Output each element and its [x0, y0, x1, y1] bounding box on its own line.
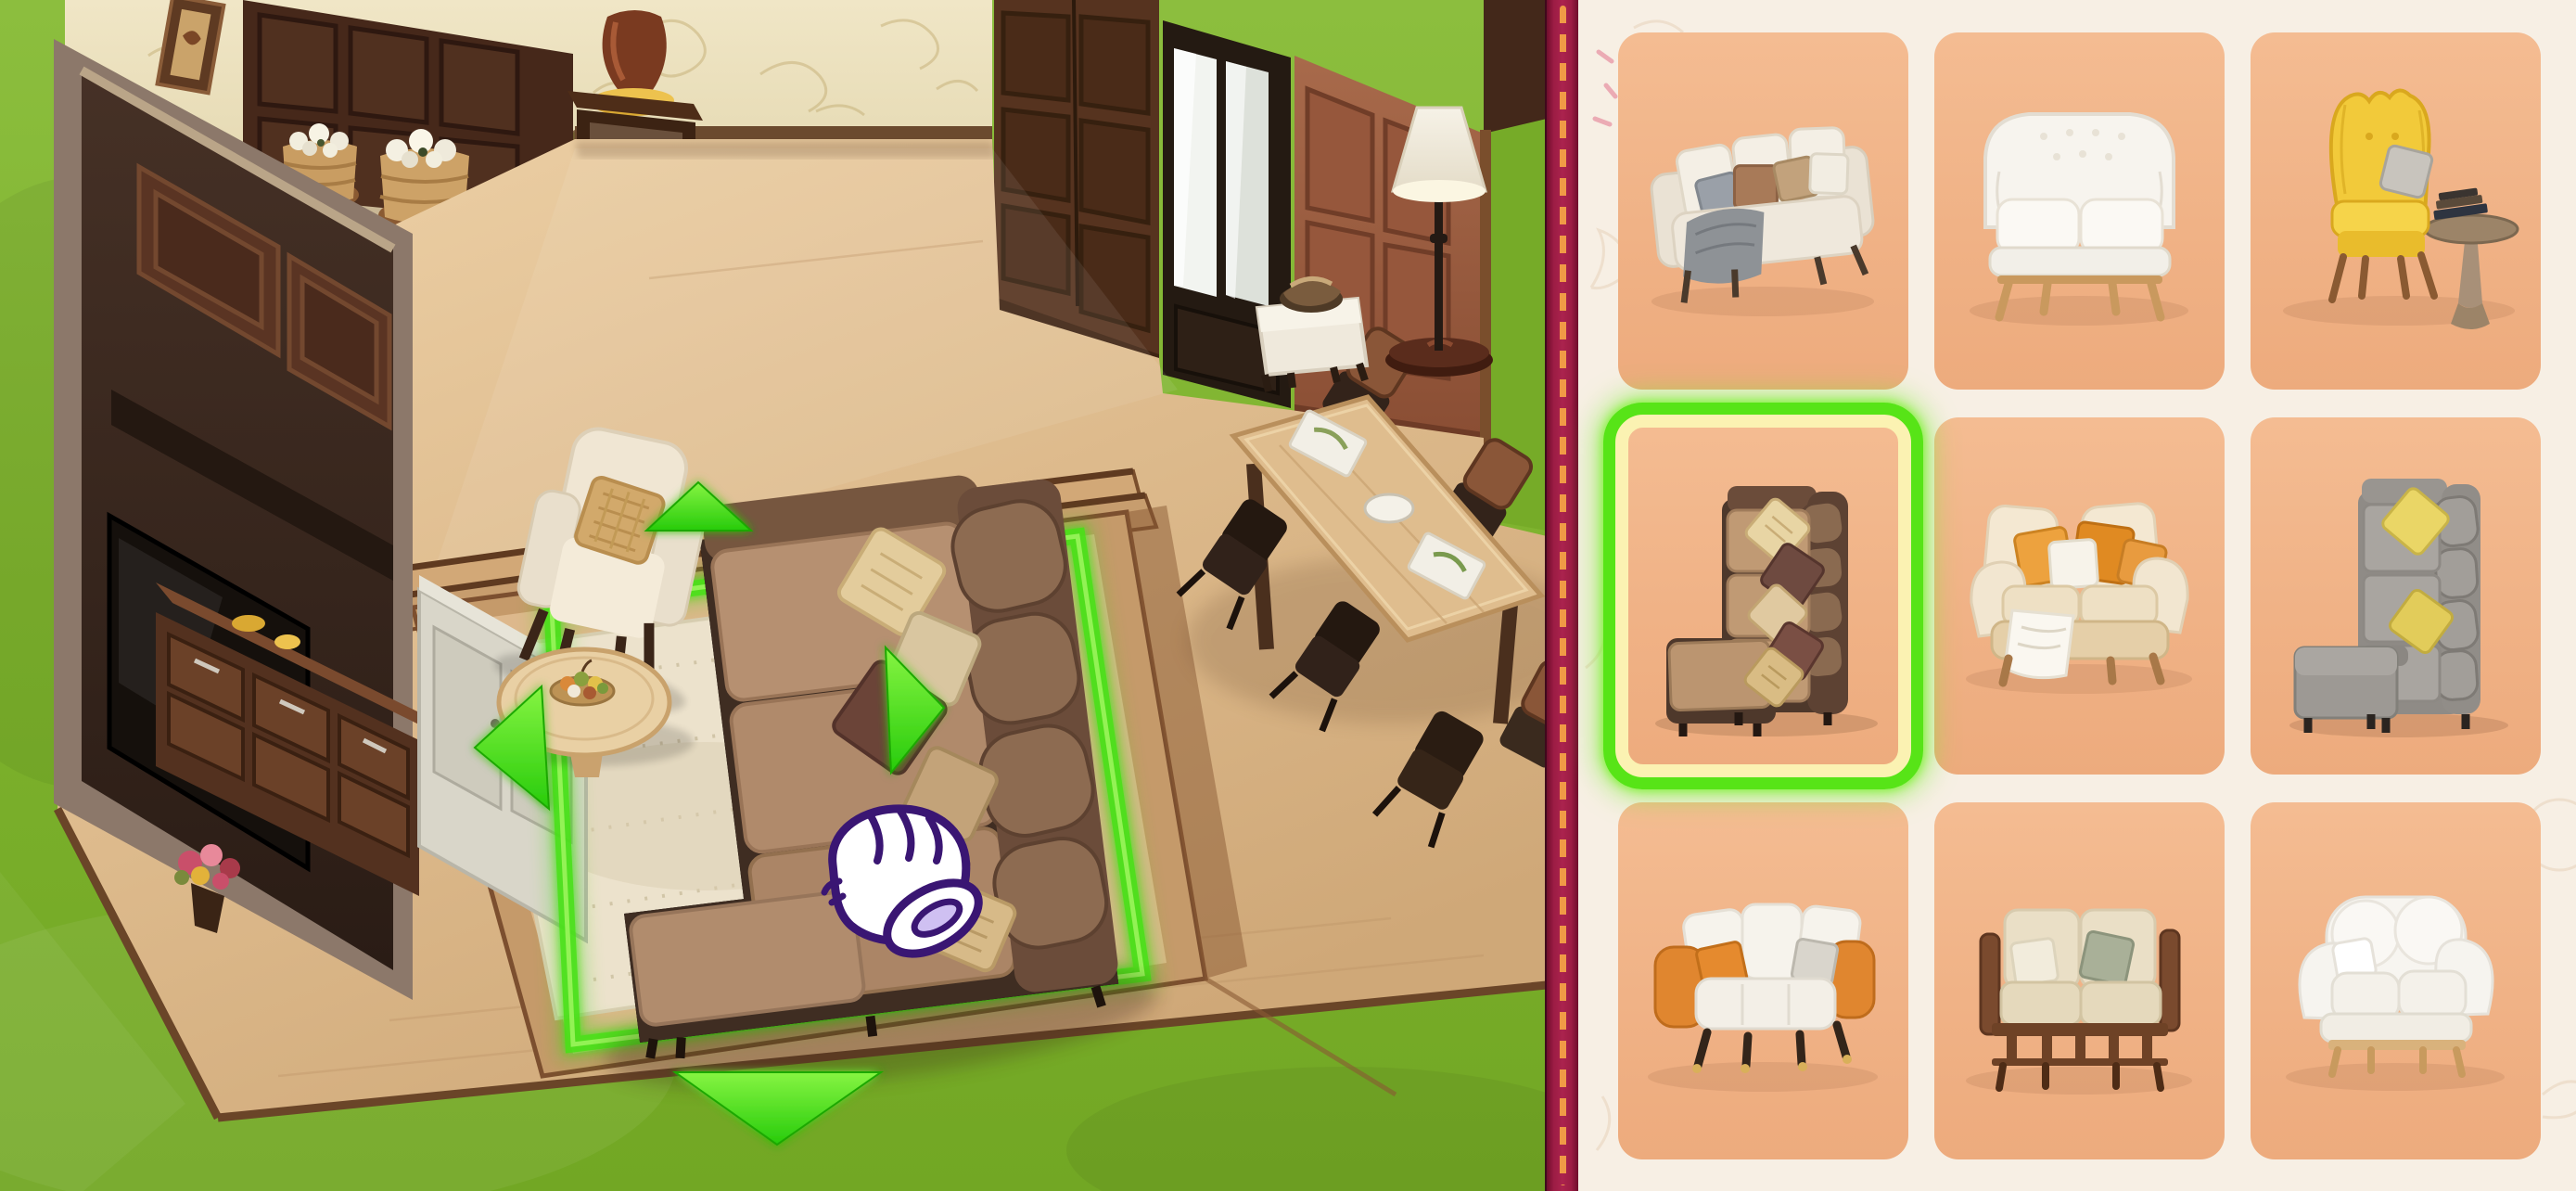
furniture-grid: [1578, 0, 2576, 1191]
furniture-tile-yellow-wingback-armchair[interactable]: [2251, 32, 2541, 390]
furniture-tile-white-orange-sofa[interactable]: [1618, 802, 1908, 1159]
furniture-tile-cream-3seat-sofa[interactable]: [1618, 32, 1908, 390]
furniture-tile-brown-sectional-selected[interactable]: [1618, 417, 1908, 775]
game-screen: [0, 0, 2576, 1191]
furniture-tile-white-tufted-loveseat[interactable]: [1934, 32, 2225, 390]
furniture-tile-white-rounded-loveseat[interactable]: [2251, 802, 2541, 1159]
furniture-tile-beige-woodframe-sofa[interactable]: [1934, 802, 2225, 1159]
furniture-selection-panel: [1578, 0, 2576, 1191]
wingback-chair: [2331, 90, 2434, 300]
furniture-tile-cream-orange-sofa[interactable]: [1934, 417, 2225, 775]
room-scene: [0, 0, 1547, 1191]
panel-divider: [1547, 0, 1578, 1191]
stitch-line: [1560, 6, 1566, 1185]
furniture-tile-gray-sectional[interactable]: [2251, 417, 2541, 775]
